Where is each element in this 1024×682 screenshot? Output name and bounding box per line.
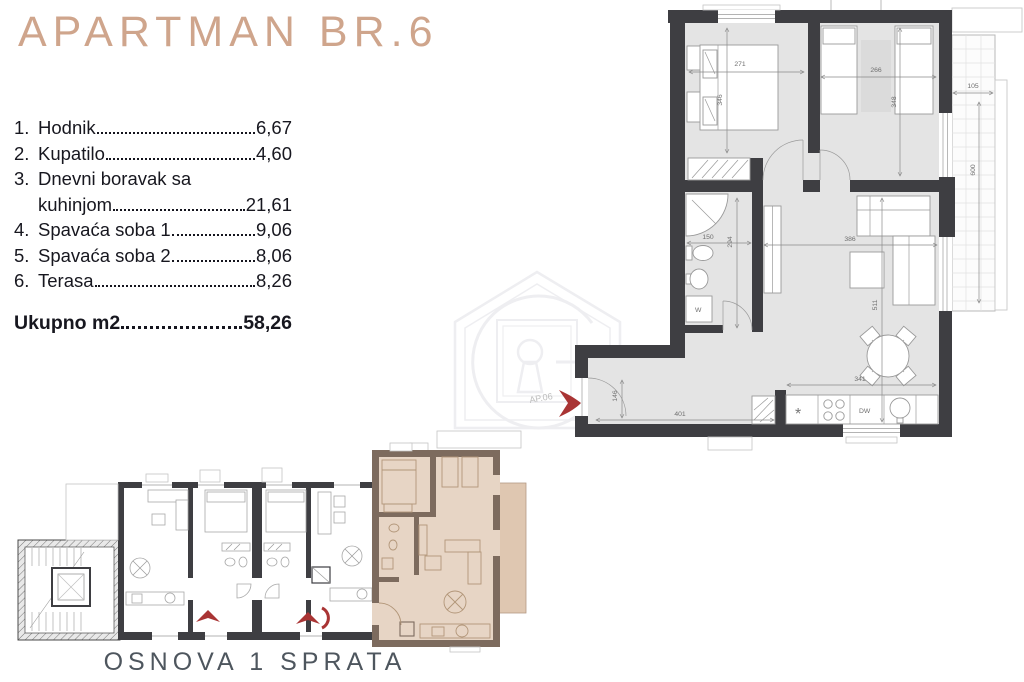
dim-bedroom1-height: 346 [717, 94, 724, 106]
building-floor [124, 488, 372, 632]
dim-terrace-width: 105 [967, 83, 979, 90]
pillow [823, 28, 855, 44]
dim-living-height: 511 [872, 299, 879, 310]
page: APARTMAN BR.6 1. Hodnik 6,67 2. Kupatilo… [0, 0, 1024, 682]
mini-floor-plan [18, 431, 526, 652]
dim-terrace-height: 600 [970, 164, 977, 176]
roof-outline [952, 8, 1022, 32]
toilet-tank [686, 246, 692, 260]
terrace-railing [995, 80, 1007, 310]
dining-table [860, 326, 916, 385]
dishwasher-label: DW [859, 408, 871, 415]
kitchen: * DW [786, 395, 938, 424]
floor-plan-canvas: W [0, 0, 1024, 682]
toilet [693, 246, 713, 261]
fridge-symbol: * [795, 406, 801, 423]
dim-bathroom-width: 150 [702, 234, 714, 241]
bidet [690, 269, 708, 289]
main-floor-plan: W [529, 0, 1022, 450]
dim-bedroom1-width: 271 [734, 61, 746, 68]
sofa [857, 196, 930, 236]
mini-plan-caption: OSNOVA 1 SPRATA [100, 648, 410, 677]
highlighted-apartment [372, 443, 526, 652]
rug [861, 40, 891, 112]
dim-hall-width: 401 [674, 411, 686, 418]
washer-label: W [695, 307, 702, 314]
dim-bedroom2-height: 348 [891, 96, 898, 108]
pillow [897, 28, 931, 44]
dim-kitchen-width: 341 [854, 376, 866, 383]
dim-bedroom2-width: 266 [870, 67, 882, 74]
wardrobe-hatch [688, 158, 750, 180]
terrace [952, 35, 1007, 311]
dim-living-width: 386 [844, 236, 856, 243]
dim-bathroom-height: 294 [727, 236, 734, 248]
sofa [893, 236, 935, 305]
dim-entry-height: 146 [612, 390, 619, 402]
sink [890, 398, 910, 418]
coffee-table [850, 252, 884, 288]
stairwell [18, 540, 120, 640]
